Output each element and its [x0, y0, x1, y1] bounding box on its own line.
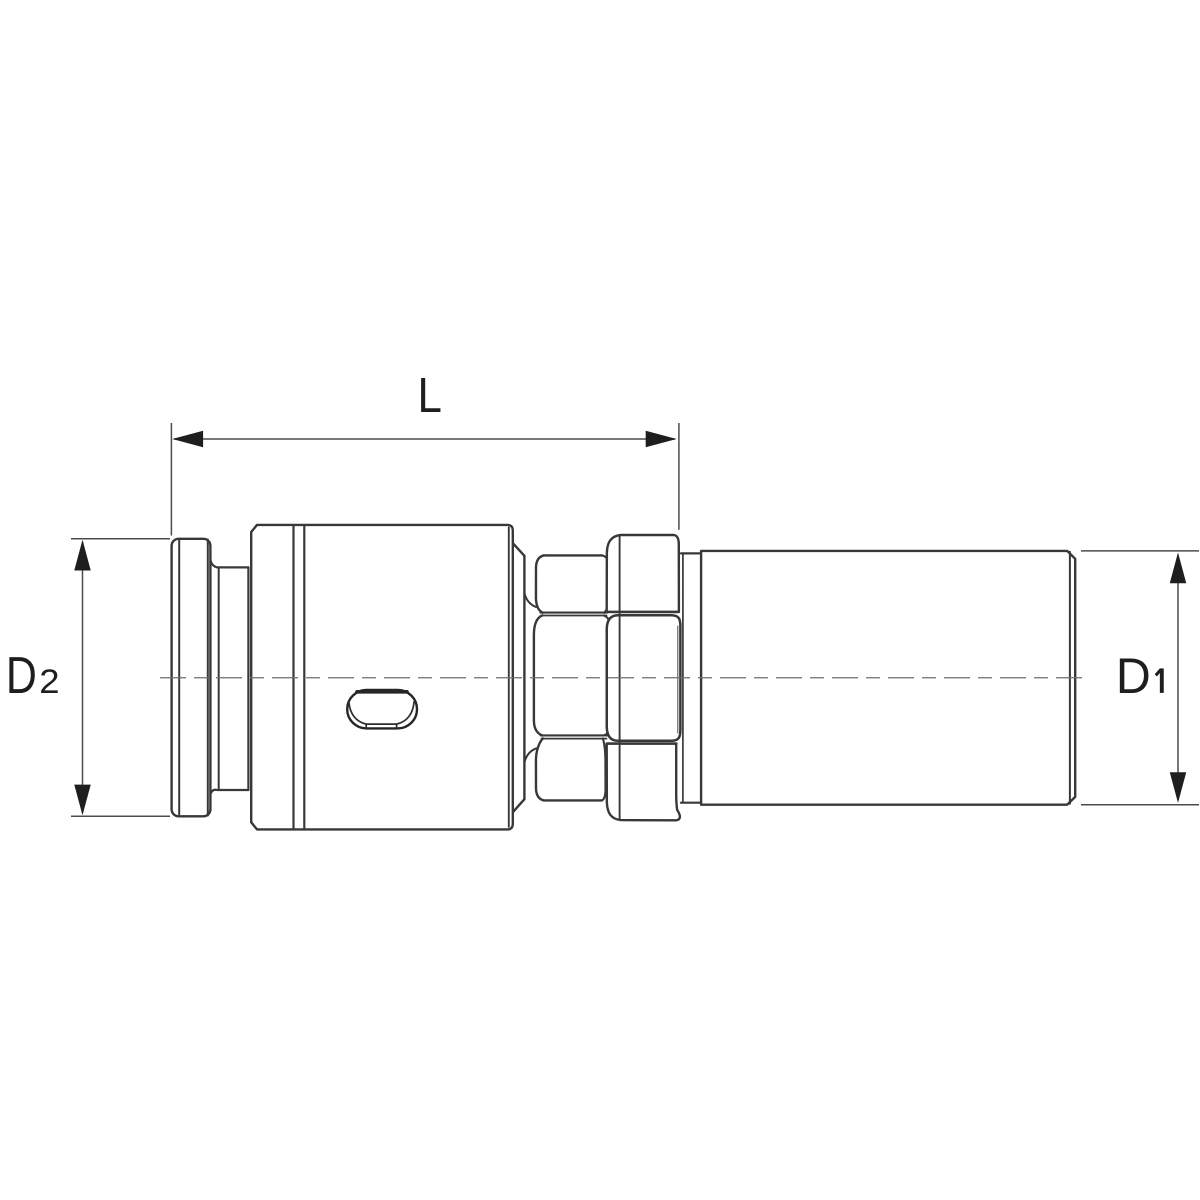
svg-text:2: 2 — [39, 663, 59, 701]
svg-text:D: D — [6, 647, 37, 705]
svg-text:L: L — [418, 368, 442, 423]
svg-text:D: D — [1116, 648, 1151, 704]
